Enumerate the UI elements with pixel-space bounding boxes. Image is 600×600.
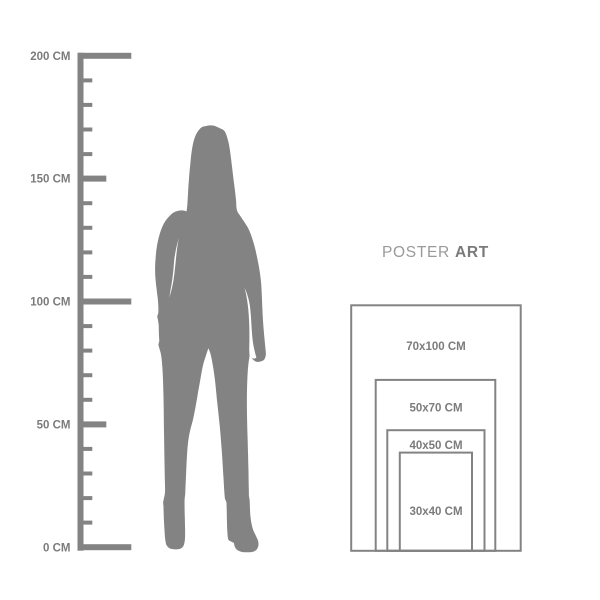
svg-text:50x70 CM: 50x70 CM bbox=[409, 403, 462, 415]
svg-text:150 CM: 150 CM bbox=[30, 174, 70, 186]
svg-text:40x50 CM: 40x50 CM bbox=[409, 440, 462, 452]
svg-text:70x100 CM: 70x100 CM bbox=[406, 341, 465, 353]
svg-text:POSTER ART: POSTER ART bbox=[382, 244, 489, 261]
svg-text:50 CM: 50 CM bbox=[37, 420, 71, 432]
svg-text:200 CM: 200 CM bbox=[30, 51, 70, 63]
svg-text:0 CM: 0 CM bbox=[43, 542, 70, 554]
svg-text:100 CM: 100 CM bbox=[30, 297, 70, 309]
svg-text:30x40 CM: 30x40 CM bbox=[409, 506, 462, 518]
